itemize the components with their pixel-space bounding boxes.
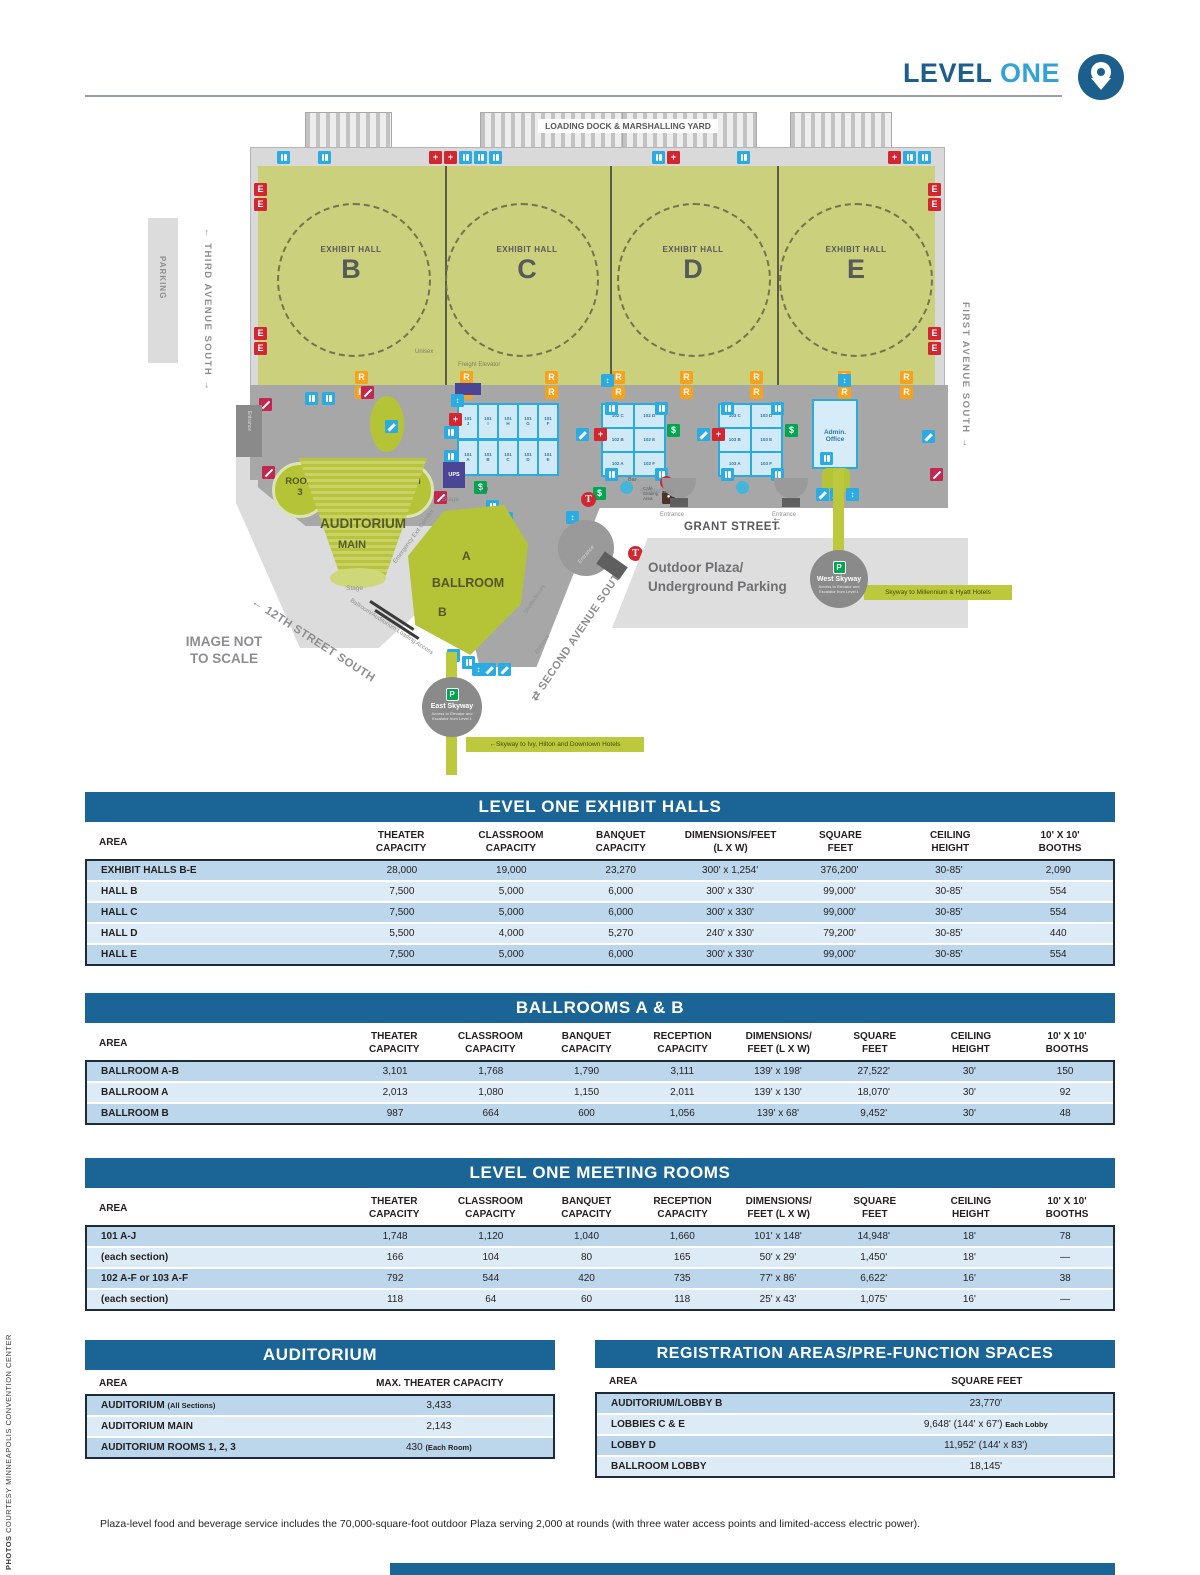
table-header-row: AREATHEATER CAPACITYCLASSROOM CAPACITYBA… — [85, 825, 1115, 859]
restroom-icon — [489, 151, 502, 164]
table-cell: 664 — [443, 1104, 539, 1123]
table-cell: 1,748 — [347, 1227, 443, 1246]
photo-credit: PHOTOS COURTESY MINNEAPOLIS CONVENTION C… — [4, 1130, 13, 1570]
table-cell: 30-85' — [894, 882, 1003, 901]
column-header: THEATER CAPACITY — [346, 1030, 442, 1056]
table-cell: 14,948' — [826, 1227, 922, 1246]
footnote: Plaza-level food and beverage service in… — [100, 1518, 1080, 1530]
table-header-row: AREATHEATER CAPACITYCLASSROOM CAPACITYBA… — [85, 1191, 1115, 1225]
escalator-icon — [816, 488, 829, 501]
column-header: THEATER CAPACITY — [346, 829, 456, 855]
exit-icon: E — [928, 183, 941, 196]
registration-icon: R — [545, 371, 558, 384]
table-cell: 27,522' — [826, 1062, 922, 1081]
column-header: RECEPTION CAPACITY — [635, 1195, 731, 1221]
hall-label: EXHIBIT HALL B — [291, 245, 411, 284]
street-grant: GRANT STREET — [684, 521, 779, 533]
tdd-label: TDD — [477, 487, 488, 493]
table-cell: 5,500 — [347, 924, 456, 943]
table-cell: 987 — [347, 1104, 443, 1123]
table-header-row: AREASQUARE FEET — [595, 1371, 1115, 1392]
elevator-icon: ↕ — [451, 394, 464, 407]
registration-icon: R — [545, 386, 558, 399]
page-title: LEVEL ONE — [903, 58, 1060, 89]
elevator-icon: ↕ — [472, 663, 485, 676]
column-header: BANQUET CAPACITY — [538, 1030, 634, 1056]
restroom-icon — [771, 402, 784, 415]
page: PHOTOS COURTESY MINNEAPOLIS CONVENTION C… — [0, 0, 1200, 1575]
table-cell: — — [1017, 1248, 1113, 1267]
east-skyway: P East Skyway Access to Elevator and Esc… — [422, 677, 482, 737]
table-cell: 7,500 — [347, 903, 456, 922]
restroom-icon — [459, 151, 472, 164]
shuttle-stop-dot — [736, 481, 749, 494]
table-cell: 544 — [443, 1269, 539, 1288]
table-cell: AUDITORIUM MAIN — [87, 1417, 325, 1436]
table-cell: 1,056 — [634, 1104, 730, 1123]
column-header: AREA — [85, 1377, 325, 1390]
exit-icon: E — [928, 198, 941, 211]
table-cell: 118 — [634, 1290, 730, 1309]
table-row: LOBBIES C & E 9,648' (144' x 67') Each L… — [597, 1413, 1113, 1434]
table-title: LEVEL ONE EXHIBIT HALLS — [85, 792, 1115, 822]
table-cell: 2,011 — [634, 1083, 730, 1102]
table-cell: 99,000' — [785, 882, 894, 901]
room-103-row: 103 B103 E — [720, 429, 781, 451]
room-101-cell: 101 G — [519, 405, 537, 438]
shuttle-stop-dot — [620, 481, 633, 494]
table-cell: (each section) — [87, 1248, 347, 1267]
first-aid-icon: + — [888, 151, 901, 164]
table-cell: (each section) — [87, 1290, 347, 1309]
elevator-icon: ↕ — [601, 374, 614, 387]
restroom-icon — [474, 151, 487, 164]
table-cell: 3,111 — [634, 1062, 730, 1081]
table-cell: 6,000 — [566, 882, 675, 901]
table-title: AUDITORIUM — [85, 1340, 555, 1370]
first-aid-icon: + — [667, 151, 680, 164]
table-row: EXHIBIT HALLS B-E28,00019,00023,270300' … — [87, 861, 1113, 880]
table-title: LEVEL ONE MEETING ROOMS — [85, 1158, 1115, 1188]
ballroom-label: BALLROOM — [408, 576, 528, 590]
column-header: BANQUET CAPACITY — [566, 829, 676, 855]
parking-icon: P — [810, 557, 868, 575]
room-102-row: 102 B102 E — [603, 429, 664, 451]
first-aid-icon: + — [429, 151, 442, 164]
street-first-avenue: FIRST AVENUE SOUTH → — [960, 302, 971, 449]
restroom-icon — [820, 452, 833, 465]
parking-lot: PARKING — [148, 218, 178, 363]
table-cell: LOBBY D — [597, 1436, 859, 1455]
photo-credit-bold: PHOTOS — [4, 1535, 13, 1570]
room-101-cell: 101 B — [479, 441, 497, 474]
ballroom-a-label: A — [462, 549, 471, 563]
table-cell: 2,090 — [1004, 861, 1113, 880]
column-header: AREA — [595, 1375, 859, 1388]
unisex-label: Unisex — [415, 349, 433, 355]
hall-letter: E — [796, 254, 916, 284]
exit-icon: E — [254, 327, 267, 340]
loading-dock-segment — [305, 112, 392, 148]
table-cell: 1,450' — [826, 1248, 922, 1267]
table-cell: 1,040 — [539, 1227, 635, 1246]
restroom-icon — [721, 402, 734, 415]
table-cell: 600 — [539, 1104, 635, 1123]
entrance-label: Entrance — [246, 411, 252, 431]
auditorium-main-label: MAIN — [288, 539, 416, 551]
table-cell: 30' — [922, 1062, 1018, 1081]
restroom-icon — [652, 151, 665, 164]
column-header: 10' X 10' BOOTHS — [1005, 829, 1115, 855]
table-cell: HALL D — [87, 924, 347, 943]
table-cell: 104 — [443, 1248, 539, 1267]
table-cell: 1,150 — [539, 1083, 635, 1102]
escalator-icon — [385, 420, 398, 433]
room-101-cell: 101 F — [539, 405, 557, 438]
column-header: 10' X 10' BOOTHS — [1019, 1030, 1115, 1056]
table-body: EXHIBIT HALLS B-E28,00019,00023,270300' … — [85, 859, 1115, 966]
table-cell: AUDITORIUM (All Sections) — [87, 1396, 325, 1415]
loading-dock-segment — [790, 112, 892, 148]
east-skyway-band — [446, 735, 457, 775]
stage-label: Stage — [442, 496, 459, 503]
escalator-icon — [576, 428, 589, 441]
entrance-label: Entrance — [660, 512, 684, 518]
table-body: AUDITORIUM (All Sections) 3,433 AUDITORI… — [85, 1394, 555, 1459]
table-cell: 554 — [1004, 882, 1113, 901]
restroom-icon — [605, 402, 618, 415]
hall-label-text: EXHIBIT HALL — [633, 245, 753, 254]
first-aid-icon: + — [444, 151, 457, 164]
table-cell: 79,200' — [785, 924, 894, 943]
column-header: DIMENSIONS/ FEET (L X W) — [731, 1195, 827, 1221]
hall-label: EXHIBIT HALL D — [633, 245, 753, 284]
hall-letter: B — [291, 254, 411, 284]
exit-icon: E — [928, 327, 941, 340]
table-cell: 101 A-J — [87, 1227, 347, 1246]
table-cell: 30' — [922, 1104, 1018, 1123]
stairs-icon — [262, 466, 275, 479]
dollar-icon: $ — [785, 424, 798, 437]
registration-icon: R — [900, 371, 913, 384]
registration-icon: R — [680, 371, 693, 384]
hall-label: EXHIBIT HALL C — [467, 245, 587, 284]
table-cell: 554 — [1004, 903, 1113, 922]
table-title: REGISTRATION AREAS/PRE-FUNCTION SPACES — [595, 1340, 1115, 1368]
table-cell: BALLROOM A-B — [87, 1062, 347, 1081]
restroom-icon — [918, 151, 931, 164]
table-cell: 23,770' — [859, 1394, 1113, 1413]
column-header: DIMENSIONS/ FEET (L X W) — [731, 1030, 827, 1056]
table-body: 101 A-J1,7481,1201,0401,660101' x 148'14… — [85, 1225, 1115, 1311]
transit-icon: T — [581, 492, 596, 507]
table-cell: 1,080 — [443, 1083, 539, 1102]
table-cell: AUDITORIUM/LOBBY B — [597, 1394, 859, 1413]
column-header: BANQUET CAPACITY — [538, 1195, 634, 1221]
restroom-icon — [737, 151, 750, 164]
column-header: CLASSROOM CAPACITY — [442, 1195, 538, 1221]
column-header: SQUARE FEET — [827, 1195, 923, 1221]
table-row: HALL D5,5004,0005,270240' x 330'79,200'3… — [87, 922, 1113, 943]
table-cell: BALLROOM B — [87, 1104, 347, 1123]
table-cell: 99,000' — [785, 945, 894, 964]
outdoor-plaza-label: Outdoor Plaza/ Underground Parking — [648, 558, 787, 596]
stage-label: Stage — [346, 585, 363, 592]
east-skyway-band — [446, 652, 457, 679]
table-cell: 440 — [1004, 924, 1113, 943]
table-cell: 6,622' — [826, 1269, 922, 1288]
exit-icon: E — [254, 342, 267, 355]
shuttle-taxis-label: Shuttle/Taxis — [640, 489, 674, 495]
west-entrance: Entrance — [236, 405, 262, 457]
stairs-icon — [930, 468, 943, 481]
stairs-icon — [361, 386, 374, 399]
table-cell: 78 — [1017, 1227, 1113, 1246]
room-101-cell: 101 D — [519, 441, 537, 474]
table-row: HALL B7,5005,0006,000300' x 330'99,000'3… — [87, 880, 1113, 901]
table-cell: 1,660 — [634, 1227, 730, 1246]
table-cell: 554 — [1004, 945, 1113, 964]
registration-table: REGISTRATION AREAS/PRE-FUNCTION SPACES A… — [595, 1340, 1115, 1478]
column-header: CEILING HEIGHT — [923, 1030, 1019, 1056]
table-cell: 139' x 198' — [730, 1062, 826, 1081]
column-header: AREA — [85, 1202, 346, 1215]
west-skyway-band-label: Skyway to Millennium & Hyatt Hotels — [864, 585, 1012, 600]
table-cell: 5,270 — [566, 924, 675, 943]
table-row: 101 A-J1,7481,1201,0401,660101' x 148'14… — [87, 1227, 1113, 1246]
table-cell: 64 — [443, 1290, 539, 1309]
table-row: HALL E7,5005,0006,000300' x 330'99,000'3… — [87, 943, 1113, 964]
photo-credit-text: COURTESY MINNEAPOLIS CONVENTION CENTER — [4, 1334, 13, 1535]
registration-icon: R — [838, 386, 851, 399]
table-row: BALLROOM A-B3,1011,7681,7903,111139' x 1… — [87, 1062, 1113, 1081]
dollar-icon: $ — [667, 424, 680, 437]
table-cell: — — [1017, 1290, 1113, 1309]
restroom-icon — [903, 151, 916, 164]
table-cell: 9,452' — [826, 1104, 922, 1123]
table-cell: 99,000' — [785, 903, 894, 922]
page-title-level: LEVEL — [903, 58, 992, 88]
column-header: MAX. THEATER CAPACITY — [325, 1377, 555, 1390]
table-cell: 1,120 — [443, 1227, 539, 1246]
table-body: BALLROOM A-B3,1011,7681,7903,111139' x 1… — [85, 1060, 1115, 1125]
room-102-cell: 102 E — [635, 429, 665, 451]
parking-icon: P — [422, 684, 482, 702]
column-header: CEILING HEIGHT — [895, 829, 1005, 855]
table-cell: HALL B — [87, 882, 347, 901]
west-skyway-band — [833, 468, 844, 554]
table-row: (each section)118646011825' x 43'1,075'1… — [87, 1288, 1113, 1309]
table-cell: HALL E — [87, 945, 347, 964]
grant-arrows: ← → — [772, 514, 782, 532]
table-cell: 18,070' — [826, 1083, 922, 1102]
registration-icon: R — [355, 371, 368, 384]
table-cell: 5,000 — [457, 945, 566, 964]
entrance-stub — [670, 498, 688, 507]
column-header: SQUARE FEET — [786, 829, 896, 855]
exhibit-halls-table: LEVEL ONE EXHIBIT HALLS AREATHEATER CAPA… — [85, 792, 1115, 966]
table-cell: 2,013 — [347, 1083, 443, 1102]
table-cell: 300' x 1,254' — [675, 861, 784, 880]
column-header: SQUARE FEET — [859, 1375, 1115, 1388]
table-cell: 25' x 43' — [730, 1290, 826, 1309]
table-title: BALLROOMS A & B — [85, 993, 1115, 1023]
column-header: RECEPTION CAPACITY — [635, 1030, 731, 1056]
column-header: CLASSROOM CAPACITY — [456, 829, 566, 855]
restroom-icon — [605, 468, 618, 481]
table-cell: 77' x 86' — [730, 1269, 826, 1288]
table-cell: LOBBIES C & E — [597, 1415, 859, 1434]
west-skyway-sub: Access to Elevator and Escalator from Le… — [810, 584, 868, 595]
loading-dock-label: LOADING DOCK & MARSHALLING YARD — [538, 119, 718, 133]
table-cell: 30-85' — [894, 945, 1003, 964]
restroom-icon — [277, 151, 290, 164]
table-cell: 2,143 — [325, 1417, 553, 1436]
column-header: AREA — [85, 836, 346, 849]
west-skyway: P West Skyway Access to Elevator and Esc… — [810, 550, 868, 608]
table-cell: 38 — [1017, 1269, 1113, 1288]
table-cell: 18' — [922, 1227, 1018, 1246]
table-cell: 19,000 — [457, 861, 566, 880]
table-cell: AUDITORIUM ROOMS 1, 2, 3 — [87, 1438, 325, 1457]
column-header: AREA — [85, 1037, 346, 1050]
first-aid-icon: + — [712, 428, 725, 441]
hall-label-text: EXHIBIT HALL — [467, 245, 587, 254]
freight-elevator-label: Freight Elevator — [458, 362, 500, 368]
elevator-icon: ↕ — [846, 488, 859, 501]
registration-icon: R — [750, 386, 763, 399]
table-cell: 4,000 — [457, 924, 566, 943]
table-cell: HALL C — [87, 903, 347, 922]
location-pin-icon — [1078, 54, 1124, 100]
table-cell: 5,000 — [457, 882, 566, 901]
room-101-cell: 101 E — [539, 441, 557, 474]
exit-icon: E — [928, 342, 941, 355]
table-cell: 7,500 — [347, 882, 456, 901]
table-cell: BALLROOM A — [87, 1083, 347, 1102]
table-cell: 102 A-F or 103 A-F — [87, 1269, 347, 1288]
escalator-icon — [922, 430, 935, 443]
table-row: BALLROOM A2,0131,0801,1502,011139' x 130… — [87, 1081, 1113, 1102]
table-cell: 60 — [539, 1290, 635, 1309]
table-cell: 6,000 — [566, 945, 675, 964]
page-title-one: ONE — [1000, 58, 1060, 88]
table-row: AUDITORIUM MAIN 2,143 — [87, 1415, 553, 1436]
table-cell: 6,000 — [566, 903, 675, 922]
table-row: 102 A-F or 103 A-F79254442073577' x 86'6… — [87, 1267, 1113, 1288]
first-aid-icon: + — [594, 428, 607, 441]
table-cell: EXHIBIT HALLS B-E — [87, 861, 347, 880]
table-cell: 48 — [1017, 1104, 1113, 1123]
table-row: BALLROOM B9876646001,056139' x 68'9,452'… — [87, 1102, 1113, 1123]
table-cell: 1,075' — [826, 1290, 922, 1309]
header-rule — [85, 95, 1062, 97]
exit-icon: E — [254, 183, 267, 196]
table-header-row: AREATHEATER CAPACITYCLASSROOM CAPACITYBA… — [85, 1026, 1115, 1060]
table-cell: 139' x 68' — [730, 1104, 826, 1123]
room-103-cell: 103 E — [752, 429, 782, 451]
registration-icon: R — [680, 386, 693, 399]
table-cell: 165 — [634, 1248, 730, 1267]
escalator-icon — [697, 428, 710, 441]
auditorium-table: AUDITORIUM AREAMAX. THEATER CAPACITY AUD… — [85, 1340, 555, 1459]
table-cell: 9,648' (144' x 67') Each Lobby — [859, 1415, 1113, 1434]
table-cell: 1,768 — [443, 1062, 539, 1081]
table-row: BALLROOM LOBBY 18,145' — [597, 1455, 1113, 1476]
meeting-rooms-table: LEVEL ONE MEETING ROOMS AREATHEATER CAPA… — [85, 1158, 1115, 1311]
table-cell: 792 — [347, 1269, 443, 1288]
table-cell: BALLROOM LOBBY — [597, 1457, 859, 1476]
table-cell: 11,952' (144' x 83') — [859, 1436, 1113, 1455]
table-cell: 300' x 330' — [675, 882, 784, 901]
elevator-icon: ↕ — [838, 374, 851, 387]
table-cell: 23,270 — [566, 861, 675, 880]
restroom-icon — [305, 392, 318, 405]
hall-label-text: EXHIBIT HALL — [291, 245, 411, 254]
admin-office: Admin. Office — [812, 399, 858, 469]
entrance-stub — [782, 498, 800, 507]
table-cell: 430 (Each Room) — [325, 1438, 553, 1457]
arrow-right: → — [772, 523, 782, 532]
room-101-cell: 101 I — [479, 405, 497, 438]
escalator-icon — [498, 663, 511, 676]
table-cell: 30-85' — [894, 903, 1003, 922]
table-cell: 18' — [922, 1248, 1018, 1267]
table-cell: 30-85' — [894, 861, 1003, 880]
east-skyway-band-label: ←Skyway to Ivy, Hilton and Downtown Hote… — [466, 737, 644, 752]
table-cell: 7,500 — [347, 945, 456, 964]
first-aid-icon: + — [449, 413, 462, 426]
room-101-cell: 101 H — [499, 405, 517, 438]
table-cell: 300' x 330' — [675, 945, 784, 964]
table-cell: 50' x 29' — [730, 1248, 826, 1267]
column-header: 10' X 10' BOOTHS — [1019, 1195, 1115, 1221]
table-cell: 16' — [922, 1269, 1018, 1288]
table-cell: 150 — [1017, 1062, 1113, 1081]
table-cell: 80 — [539, 1248, 635, 1267]
table-header-row: AREAMAX. THEATER CAPACITY — [85, 1373, 555, 1394]
restroom-icon — [322, 392, 335, 405]
bottom-bar — [390, 1563, 1115, 1575]
column-header: CLASSROOM CAPACITY — [442, 1030, 538, 1056]
table-row: HALL C7,5005,0006,000300' x 330'99,000'3… — [87, 901, 1113, 922]
east-skyway-label: East Skyway — [422, 702, 482, 711]
hall-letter: D — [633, 254, 753, 284]
table-cell: 16' — [922, 1290, 1018, 1309]
table-row: AUDITORIUM ROOMS 1, 2, 3 430 (Each Room) — [87, 1436, 553, 1457]
restroom-icon — [444, 426, 457, 439]
street-third-avenue: ← THIRD AVENUE SOUTH → — [202, 228, 213, 391]
table-cell: 166 — [347, 1248, 443, 1267]
image-not-to-scale: IMAGE NOT TO SCALE — [172, 633, 276, 667]
table-cell: 1,790 — [539, 1062, 635, 1081]
room-101-cell: 101 C — [499, 441, 517, 474]
ballrooms-table: BALLROOMS A & B AREATHEATER CAPACITYCLAS… — [85, 993, 1115, 1125]
restroom-icon — [318, 151, 331, 164]
hall-label: EXHIBIT HALL E — [796, 245, 916, 284]
restroom-icon — [655, 402, 668, 415]
registration-icon: R — [900, 386, 913, 399]
table-cell: 420 — [539, 1269, 635, 1288]
table-cell: 3,433 — [325, 1396, 553, 1415]
west-skyway-label: West Skyway — [810, 575, 868, 584]
table-body: AUDITORIUM/LOBBY B 23,770' LOBBIES C & E… — [595, 1392, 1115, 1478]
meeting-rooms-101: 101 J101 I101 H101 G101 F 101 A101 B101 … — [457, 403, 559, 476]
table-row: AUDITORIUM (All Sections) 3,433 — [87, 1396, 553, 1415]
column-header: THEATER CAPACITY — [346, 1195, 442, 1221]
registration-icon: R — [612, 386, 625, 399]
table-cell: 28,000 — [347, 861, 456, 880]
